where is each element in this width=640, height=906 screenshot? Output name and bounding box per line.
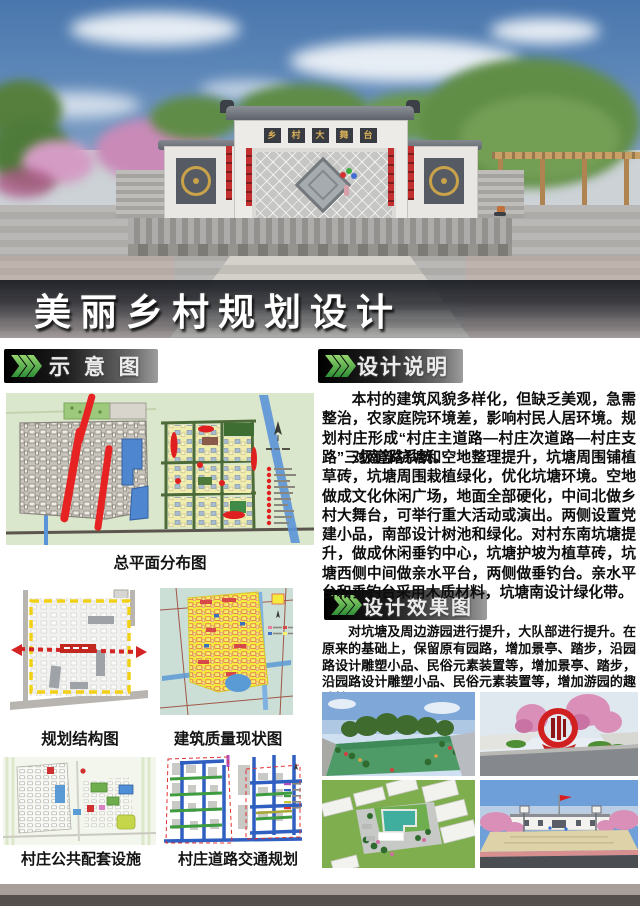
section-header-label: 示 意 图: [49, 351, 144, 381]
person-child: [344, 185, 349, 196]
map-caption-traffic: 村庄道路交通规划: [176, 848, 300, 869]
traffic-map: [162, 755, 304, 845]
stage-platform: [128, 218, 512, 244]
master-plan-map: [6, 393, 314, 545]
red-banner: [388, 148, 394, 206]
building-quality-map: [160, 588, 293, 715]
ring-ornament-icon: [193, 178, 199, 184]
hero-render-image: 乡 村 大 舞 台 美丽乡村规划设计: [0, 0, 640, 338]
stage-sign: 乡 村 大 舞 台: [244, 128, 396, 143]
pergola-post: [624, 159, 629, 205]
stage-wing-panel: [424, 158, 464, 204]
traffic-map-drawing: [162, 755, 304, 845]
folk-monument-render: [480, 692, 638, 776]
red-lantern-strip: [408, 146, 414, 200]
stage-sign-char: 大: [312, 128, 329, 143]
cloud: [70, 12, 240, 46]
basketball-court-render: [480, 780, 638, 868]
section-header-schematic: 示 意 图: [4, 349, 158, 383]
map-caption-master-plan: 总平面分布图: [60, 551, 260, 573]
map-caption-facilities: 村庄公共配套设施: [14, 848, 148, 869]
facilities-map: [3, 757, 156, 845]
stage-roof: [226, 106, 414, 120]
balloon: [351, 173, 357, 179]
facilities-map-drawing: [3, 757, 156, 845]
stage-sign-char: 乡: [264, 128, 281, 143]
section-header-description: 设计说明: [318, 349, 463, 383]
pergola-post: [540, 159, 545, 205]
stage-wing-panel: [176, 158, 216, 204]
courtyard-aerial-render: [322, 780, 475, 868]
red-banner: [246, 148, 252, 206]
section-header-label: 设计说明: [357, 351, 449, 381]
stage-sign-char: 舞: [336, 128, 353, 143]
title-banner: 美丽乡村规划设计: [0, 280, 640, 338]
ring-ornament-icon: [441, 178, 447, 184]
stage-side-wall: [116, 170, 164, 218]
structure-map-drawing: [10, 588, 148, 718]
red-lantern-strip: [226, 146, 232, 200]
map-caption-building-quality: 建筑质量现状图: [168, 727, 288, 749]
description-paragraph-2: 对南部坑塘和空地整理提升，坑塘周围铺植草砖，坑塘周围栽植绿化，优化坑塘环境。空地…: [322, 449, 636, 603]
map-caption-structure: 规划结构图: [18, 727, 142, 749]
stage-sign-char: 台: [360, 128, 377, 143]
pergola: [492, 152, 640, 159]
cloud: [490, 18, 600, 44]
footer-bar-light: [0, 884, 640, 895]
balloon: [340, 172, 346, 178]
stage-sign-char: 村: [288, 128, 305, 143]
poster: 乡 村 大 舞 台 美丽乡村规划设计 示 意 图 设计说: [0, 0, 640, 906]
stage-platform-face: [128, 244, 512, 256]
master-plan-map-drawing: [6, 393, 314, 545]
building-quality-map-drawing: [160, 588, 293, 715]
person-sitting: [494, 212, 506, 216]
footer-bar-dark: [0, 895, 640, 906]
page-title: 美丽乡村规划设计: [34, 282, 402, 336]
pond-fishing-center-render: [322, 692, 475, 776]
structure-map: [10, 588, 148, 718]
pergola-post: [582, 159, 587, 205]
